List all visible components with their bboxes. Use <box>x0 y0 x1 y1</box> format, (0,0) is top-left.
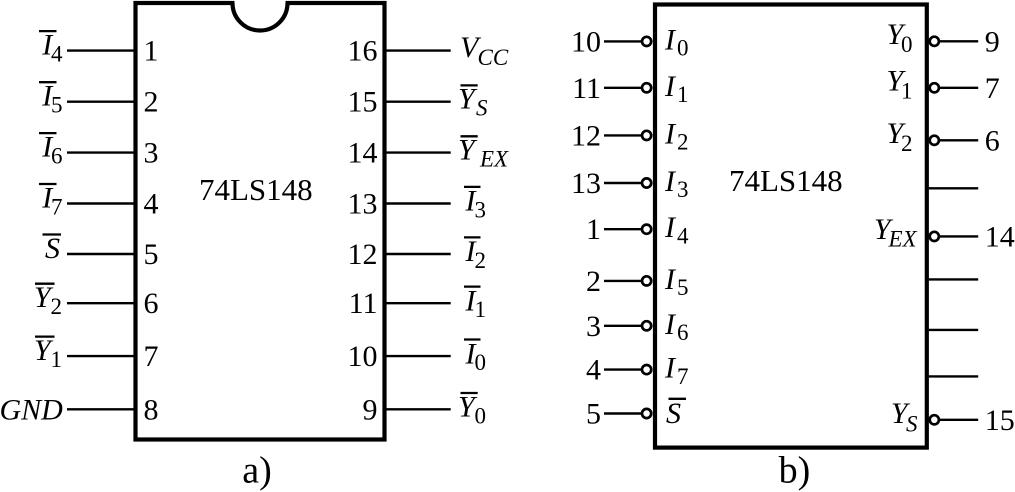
svg-text:3: 3 <box>677 177 689 202</box>
svg-text:EX: EX <box>479 147 509 172</box>
svg-text:4: 4 <box>144 188 159 221</box>
svg-text:0: 0 <box>475 403 487 428</box>
svg-text:74LS148: 74LS148 <box>729 163 843 198</box>
svg-text:6: 6 <box>51 144 63 169</box>
svg-text:13: 13 <box>348 188 378 221</box>
svg-text:1: 1 <box>144 35 159 68</box>
svg-text:a): a) <box>242 450 272 492</box>
svg-text:7: 7 <box>144 340 159 373</box>
svg-text:3: 3 <box>144 137 159 170</box>
svg-text:5: 5 <box>586 398 601 431</box>
svg-text:3: 3 <box>586 310 601 343</box>
svg-text:8: 8 <box>144 393 159 426</box>
svg-text:0: 0 <box>901 32 913 57</box>
svg-text:12: 12 <box>348 238 378 271</box>
svg-text:11: 11 <box>572 72 601 105</box>
svg-text:7: 7 <box>985 72 1000 105</box>
svg-text:11: 11 <box>349 287 378 320</box>
svg-text:15: 15 <box>348 86 378 119</box>
svg-text:2: 2 <box>144 86 159 119</box>
svg-text:13: 13 <box>571 167 601 200</box>
svg-text:6: 6 <box>144 287 159 320</box>
svg-text:7: 7 <box>51 195 63 220</box>
svg-text:S: S <box>666 397 681 430</box>
svg-text:10: 10 <box>348 340 378 373</box>
svg-text:14: 14 <box>985 220 1015 253</box>
svg-text:5: 5 <box>51 93 63 118</box>
svg-text:2: 2 <box>51 294 63 319</box>
svg-text:2: 2 <box>677 130 689 155</box>
svg-text:b): b) <box>779 450 811 492</box>
svg-text:5: 5 <box>677 275 689 300</box>
svg-text:6: 6 <box>677 320 689 345</box>
svg-text:12: 12 <box>571 119 601 152</box>
svg-text:4: 4 <box>51 42 63 67</box>
svg-text:2: 2 <box>475 248 487 273</box>
svg-text:1: 1 <box>51 347 63 372</box>
svg-text:14: 14 <box>348 137 378 170</box>
svg-text:9: 9 <box>985 25 1000 58</box>
svg-text:7: 7 <box>677 364 689 389</box>
svg-text:16: 16 <box>348 35 378 68</box>
svg-text:1: 1 <box>475 297 487 322</box>
svg-text:0: 0 <box>475 350 487 375</box>
svg-text:4: 4 <box>586 354 601 387</box>
svg-text:GND: GND <box>0 394 63 427</box>
svg-text:4: 4 <box>677 223 689 248</box>
svg-text:S: S <box>476 96 488 121</box>
svg-text:0: 0 <box>677 36 689 61</box>
svg-text:2: 2 <box>586 265 601 298</box>
svg-text:1: 1 <box>586 213 601 246</box>
svg-text:10: 10 <box>571 25 601 58</box>
svg-text:74LS148: 74LS148 <box>199 172 313 207</box>
svg-text:S: S <box>45 232 60 265</box>
svg-text:1: 1 <box>901 78 913 103</box>
svg-text:9: 9 <box>363 393 378 426</box>
svg-text:15: 15 <box>985 404 1015 437</box>
svg-text:EX: EX <box>888 226 918 251</box>
svg-text:1: 1 <box>677 82 689 107</box>
svg-text:3: 3 <box>475 198 487 223</box>
svg-text:S: S <box>906 412 918 437</box>
svg-text:CC: CC <box>478 45 509 70</box>
svg-text:6: 6 <box>985 124 1000 157</box>
svg-text:2: 2 <box>901 131 913 156</box>
svg-text:5: 5 <box>144 238 159 271</box>
